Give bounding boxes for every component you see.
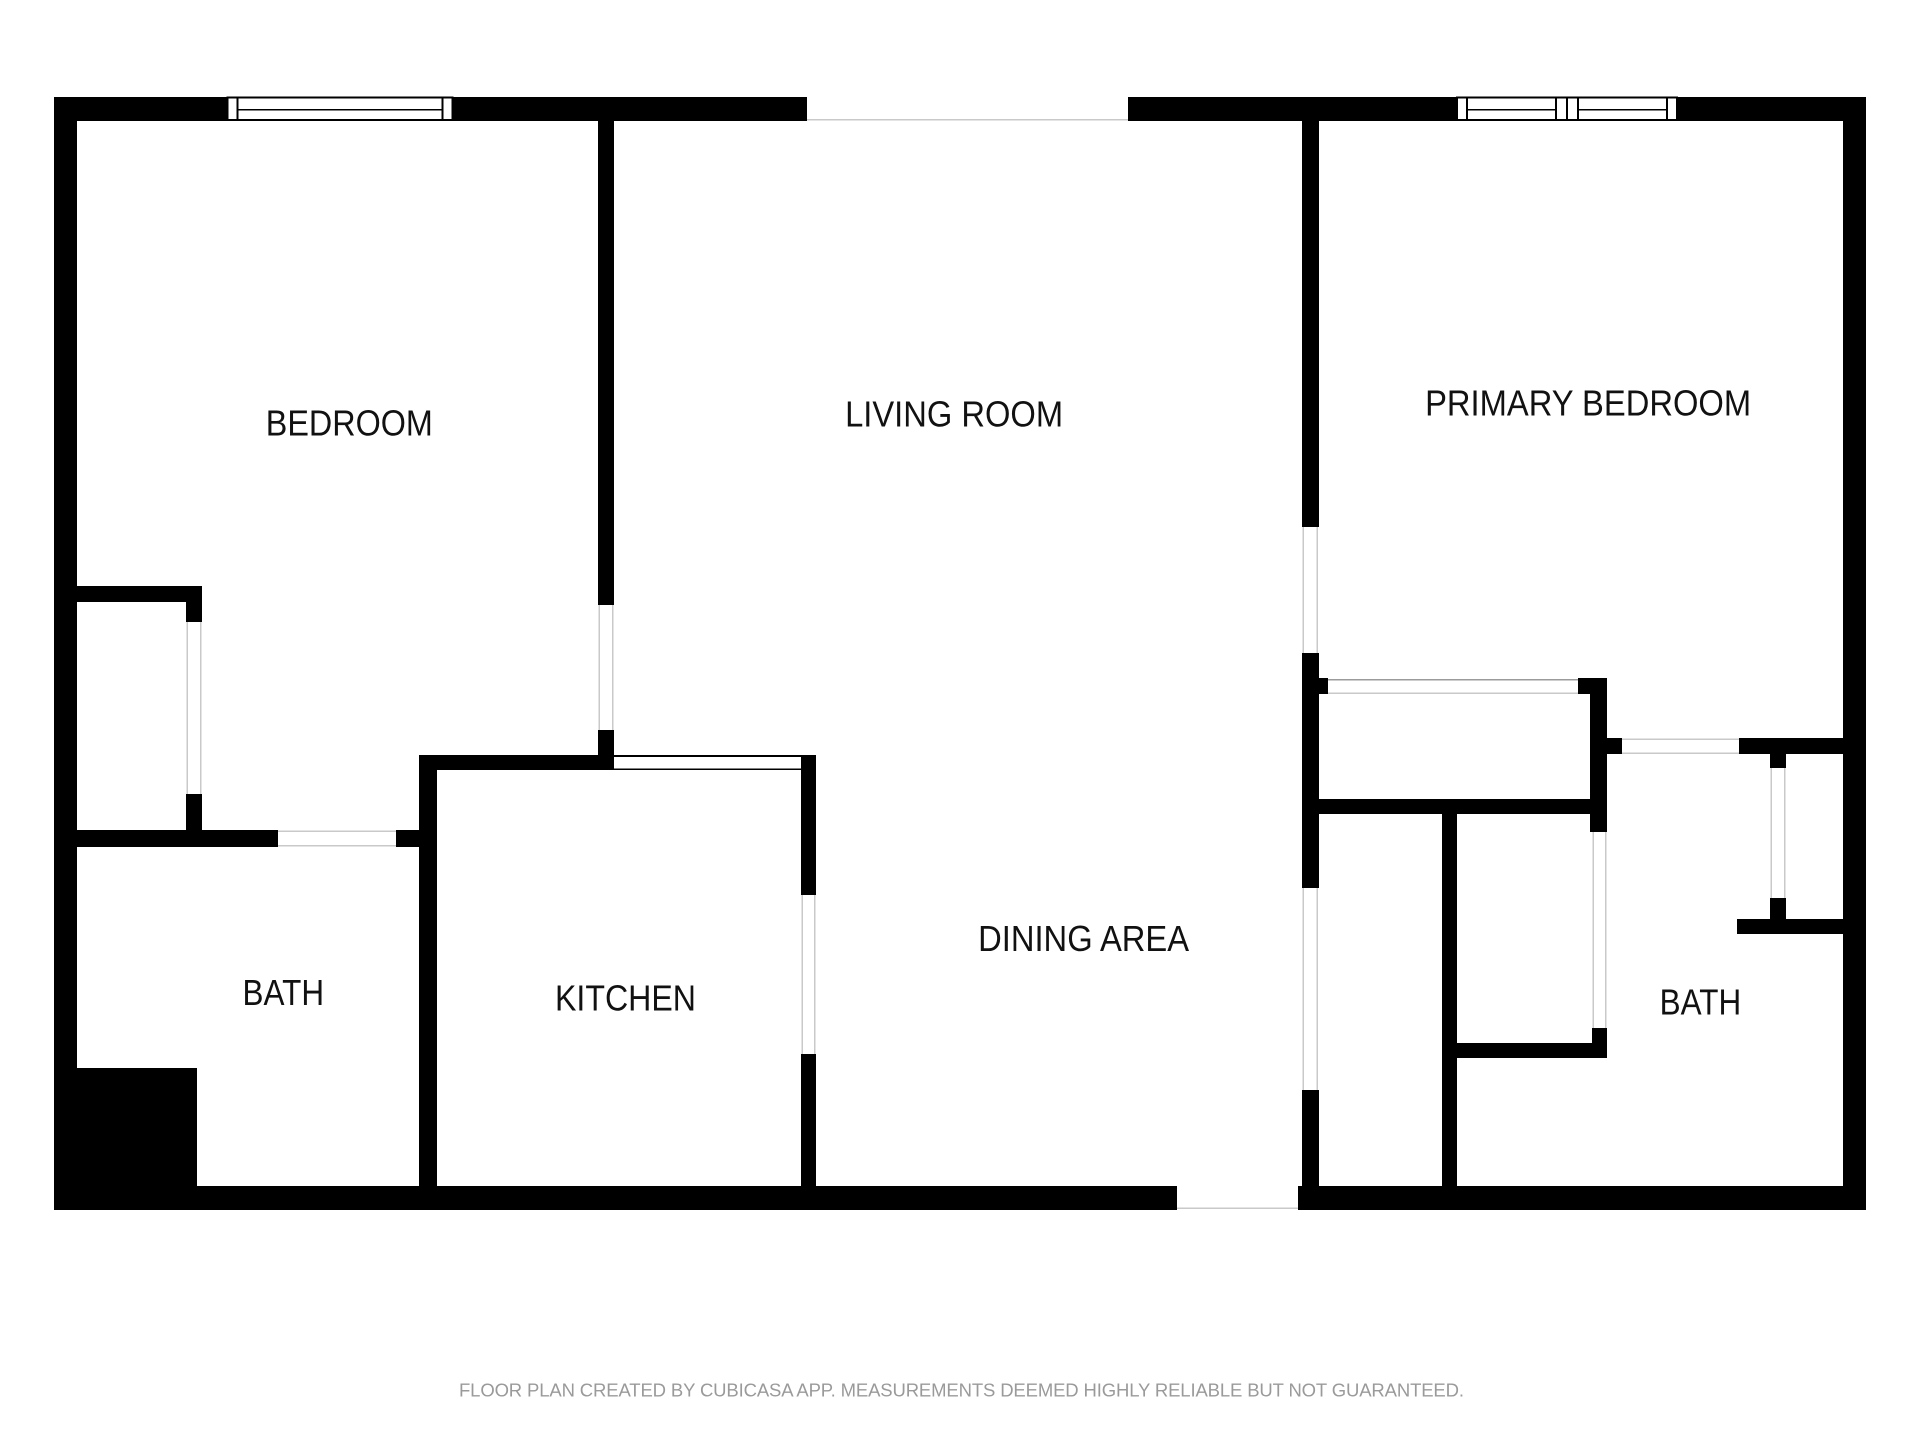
svg-text:BEDROOM: BEDROOM bbox=[266, 403, 433, 444]
svg-text:LIVING ROOM: LIVING ROOM bbox=[845, 394, 1063, 435]
svg-text:PRIMARY BEDROOM: PRIMARY BEDROOM bbox=[1425, 383, 1751, 424]
svg-text:DINING AREA: DINING AREA bbox=[978, 918, 1189, 959]
svg-text:KITCHEN: KITCHEN bbox=[555, 978, 696, 1019]
svg-text:FLOOR PLAN CREATED BY CUBICASA: FLOOR PLAN CREATED BY CUBICASA APP. MEAS… bbox=[459, 1380, 1464, 1401]
svg-text:BATH: BATH bbox=[1660, 982, 1742, 1023]
svg-text:BATH: BATH bbox=[243, 972, 325, 1013]
